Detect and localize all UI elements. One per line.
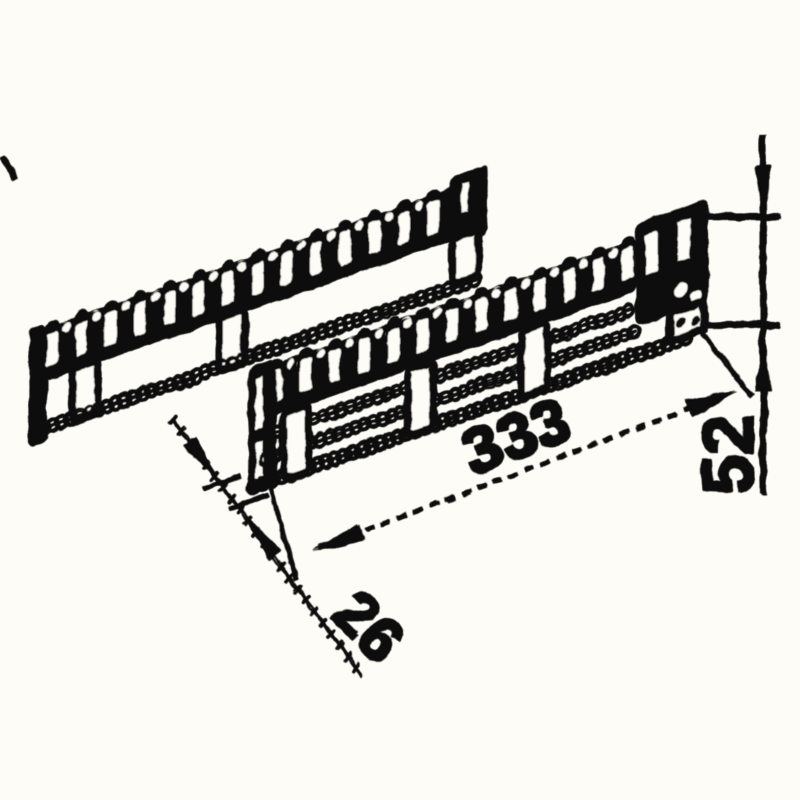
svg-text:52: 52 bbox=[689, 415, 769, 495]
svg-text:26: 26 bbox=[320, 578, 418, 676]
svg-text:333: 333 bbox=[453, 383, 581, 488]
